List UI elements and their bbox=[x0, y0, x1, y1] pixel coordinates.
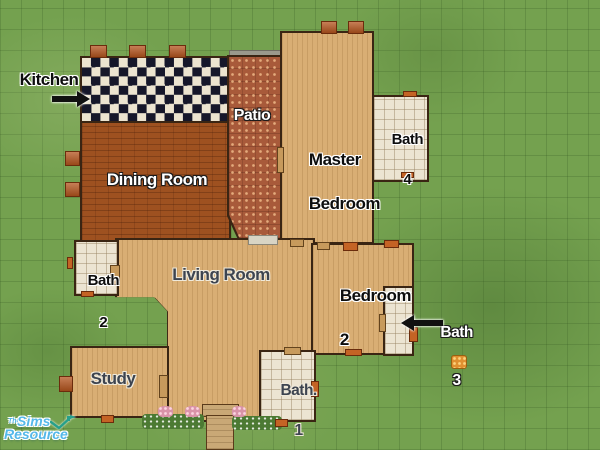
window-planter bbox=[348, 21, 364, 34]
door-marker bbox=[290, 239, 304, 247]
master-bedroom-label: Master Bedroom bbox=[292, 127, 380, 237]
window-planter bbox=[169, 45, 186, 58]
study-label: Study bbox=[91, 369, 136, 389]
dining-room-label: Dining Room bbox=[107, 170, 207, 190]
bath2-label: Bath 2 bbox=[73, 249, 119, 354]
window-marker bbox=[384, 240, 399, 248]
pink-flowers-2 bbox=[185, 406, 200, 417]
sims-lot-floorplan: Kitchen Patio Dining Room Master Bedroom… bbox=[0, 0, 600, 450]
sims-resource-watermark: The Sims Resource bbox=[2, 410, 82, 446]
kitchen-label: Kitchen bbox=[20, 70, 79, 90]
bath4-label: Bath 4 bbox=[377, 110, 423, 210]
bedroom2-label: Bedroom 2 bbox=[323, 263, 411, 373]
patio-label: Patio bbox=[234, 106, 271, 126]
door-marker bbox=[277, 147, 284, 173]
door-marker bbox=[284, 347, 301, 355]
patio-floor bbox=[227, 55, 283, 240]
window-marker bbox=[101, 415, 114, 423]
window-planter bbox=[65, 182, 80, 197]
window-planter bbox=[129, 45, 146, 58]
window-planter bbox=[59, 376, 73, 392]
front-walkway bbox=[206, 415, 234, 450]
window-marker bbox=[403, 91, 417, 97]
pink-flowers-3 bbox=[232, 406, 246, 417]
window-planter bbox=[65, 151, 80, 166]
bath3-arrow bbox=[401, 315, 445, 331]
kitchen-floor bbox=[80, 56, 231, 125]
living-room-label: Living Room bbox=[172, 265, 269, 285]
window-marker bbox=[343, 242, 358, 251]
bath1-label: Bath. 1 bbox=[265, 361, 316, 450]
door-marker bbox=[317, 242, 330, 250]
door-marker bbox=[159, 375, 168, 398]
roof-icon bbox=[50, 414, 76, 432]
patio-step bbox=[248, 235, 278, 245]
window-planter bbox=[321, 21, 337, 34]
window-planter bbox=[90, 45, 107, 58]
kitchen-arrow bbox=[50, 91, 90, 107]
pink-flowers-1 bbox=[158, 406, 173, 417]
